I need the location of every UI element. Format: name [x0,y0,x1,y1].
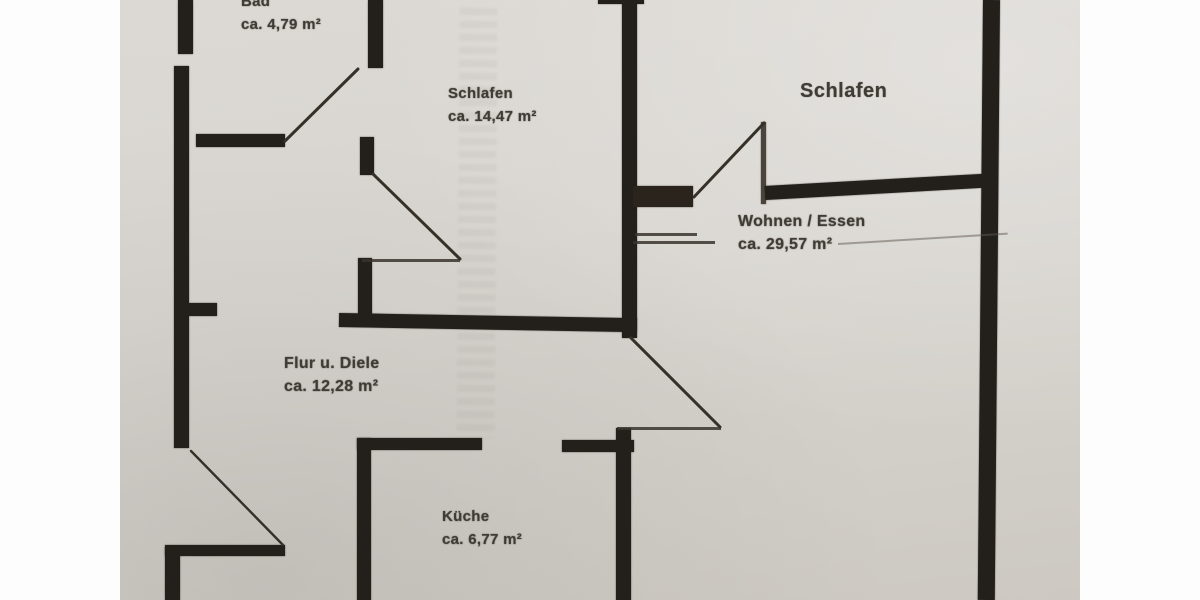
room-name: Flur u. Diele [284,352,379,375]
room-name: Wohnen / Essen [738,210,865,233]
right-letterbox [1080,0,1200,600]
room-area: ca. 4,79 m² [241,13,321,36]
room-label-schlafen-center: Schlafen ca. 14,47 m² [448,82,537,128]
room-name: Schlafen [800,80,887,103]
floorplan-photo: Bad ca. 4,79 m² Schlafen ca. 14,47 m² Sc… [120,0,1080,600]
room-label-bad: Bad ca. 4,79 m² [241,0,321,36]
room-area: ca. 6,77 m² [442,528,522,551]
room-label-schlafen-right: Schlafen [800,80,887,103]
room-label-flur-diele: Flur u. Diele ca. 12,28 m² [284,352,379,398]
door-swing-line [631,338,720,427]
left-letterbox [0,0,120,600]
door-swing-line [373,174,460,259]
door-swing-line [694,123,764,197]
room-label-kueche: Küche ca. 6,77 m² [442,505,522,551]
door-lines-layer [120,0,1080,600]
room-name: Schlafen [448,82,537,105]
room-area: ca. 29,57 m² [738,233,865,256]
door-swing-line [285,69,358,141]
room-name: Küche [442,505,522,528]
room-label-wohnen-essen: Wohnen / Essen ca. 29,57 m² [738,210,865,256]
screenshot-root: Bad ca. 4,79 m² Schlafen ca. 14,47 m² Sc… [0,0,1200,600]
room-area: ca. 14,47 m² [448,105,537,128]
room-area: ca. 12,28 m² [284,375,379,398]
room-name: Bad [241,0,321,13]
door-swing-line [191,451,283,545]
